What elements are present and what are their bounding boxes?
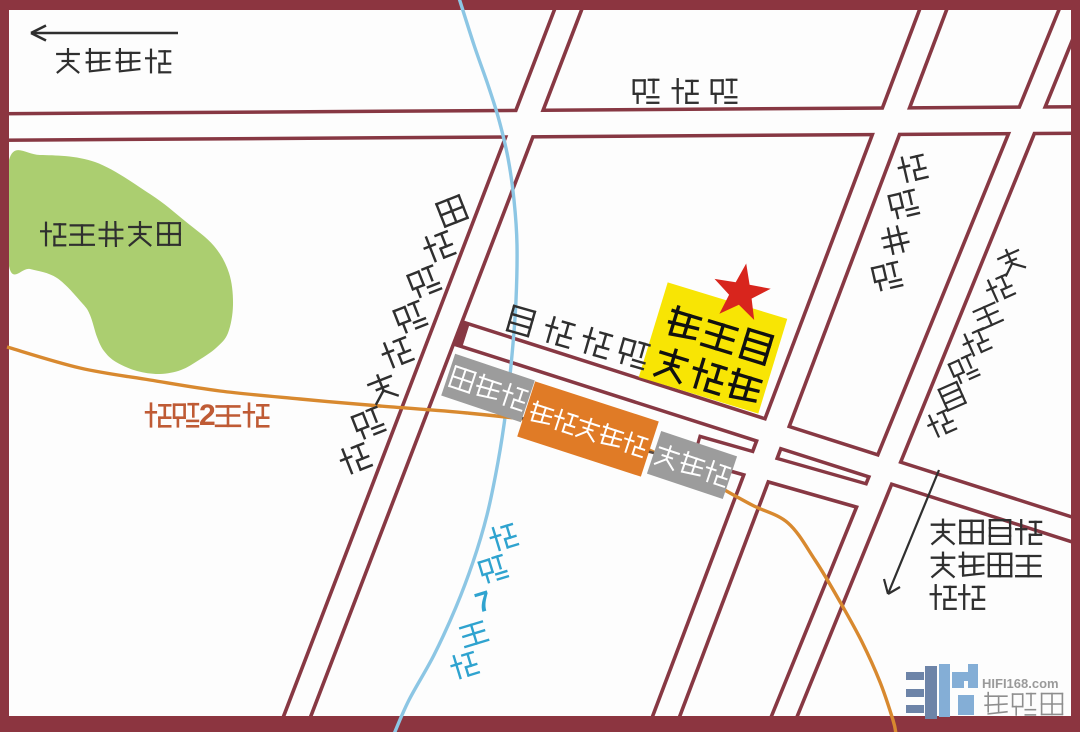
svg-text:2: 2: [199, 399, 216, 432]
svg-text:HIFI168.com: HIFI168.com: [982, 676, 1059, 691]
